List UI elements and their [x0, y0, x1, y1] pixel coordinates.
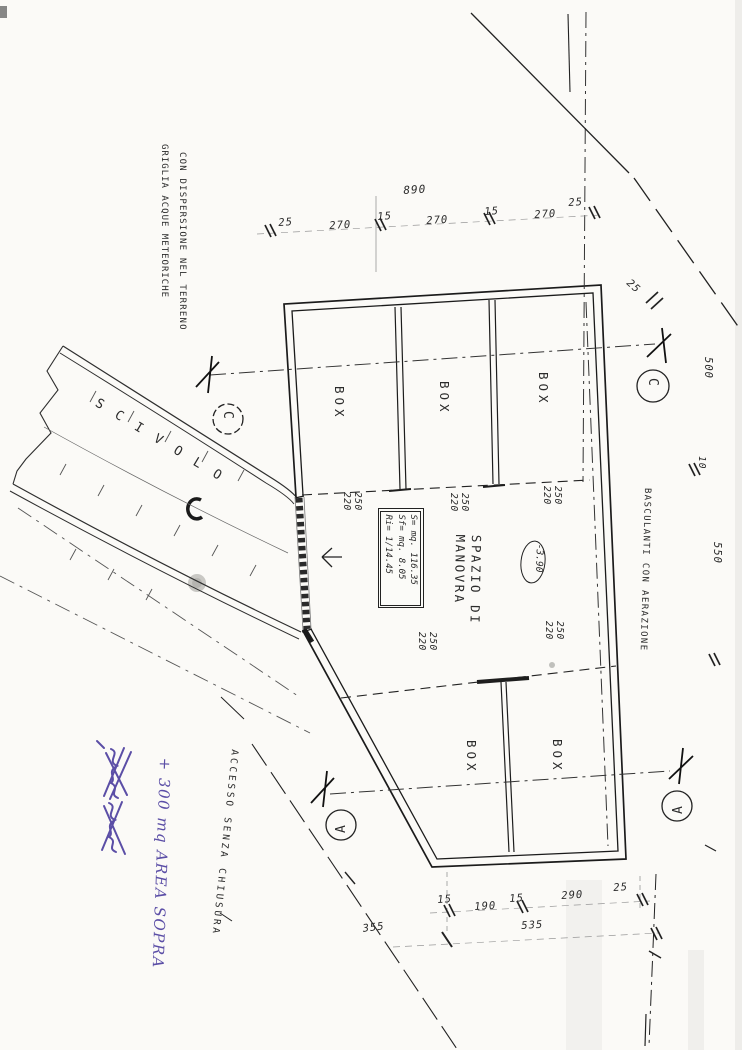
dim-top-total: 890 [403, 183, 427, 197]
dim-bottom-total: 535 [521, 919, 544, 932]
area-row-ri: Ri= 1/14.45 [382, 515, 395, 602]
dim-bot-1: 190 [474, 900, 497, 913]
terrain-jagged-edge [13, 346, 63, 484]
dim-bot-4: 25 [613, 881, 628, 894]
note-griglia-line2: CON DISPERSIONE NEL TERRENO [177, 152, 187, 331]
ramp-lower-edge [13, 484, 301, 632]
dim-right-500: 500 [702, 357, 714, 379]
stall-pair-1: 250 220 [341, 492, 363, 511]
dim-top-0: 25 [278, 216, 293, 229]
scanned-floor-plan-sheet: GRIGLIA ACQUE METEORICHE CON DISPERSIONE… [0, 0, 742, 1050]
scan-artifacts [0, 0, 742, 1050]
dim-top-4: 15 [484, 205, 499, 218]
stall-width: 250 [459, 493, 470, 512]
ink-scribbles [97, 741, 131, 854]
dimension-ticks [265, 206, 720, 947]
stall-width: 250 [554, 621, 565, 640]
section-label-c-left: C [220, 411, 235, 419]
stall-door: 220 [543, 621, 554, 640]
section-line-c [210, 344, 655, 375]
stall-pair-4: 250 220 [416, 632, 438, 651]
stall-pair-3: 250 220 [541, 486, 563, 505]
section-arrow-a-left [311, 771, 334, 807]
dim-right-10: 10 [696, 456, 707, 469]
section-arrow-c-right [647, 328, 671, 363]
dim-top-3: 270 [426, 214, 449, 227]
section-lines [210, 12, 670, 846]
stall-width: 250 [552, 486, 563, 505]
grate-strip [295, 497, 311, 630]
quota-value: -3.90 [533, 544, 545, 573]
wall-stub [304, 629, 312, 642]
stall-pair-5: 250 220 [543, 621, 565, 640]
label-box-3: BOX [536, 372, 551, 407]
plan-linework [0, 0, 742, 1050]
ramp-hatch-ticks [60, 391, 256, 600]
dim-bot-0: 15 [437, 893, 452, 906]
section-label-a-right: A [671, 806, 686, 814]
dim-bot-3: 290 [561, 889, 584, 902]
drain-arrow [322, 548, 342, 567]
label-box-5: BOX [550, 739, 565, 774]
boundary-355 [252, 744, 457, 1049]
area-table: S= mq. 116.35 Sf= mq. 8.05 Ri= 1/14.45 [378, 508, 424, 608]
area-row-s: S= mq. 116.35 [407, 515, 420, 602]
spazio-line1: SPAZIO DI [466, 535, 484, 631]
section-arrow-a-right [669, 748, 693, 784]
dim-bot-2: 15 [509, 892, 524, 905]
label-box-4: BOX [464, 740, 479, 775]
dim-top-6: 25 [568, 196, 583, 209]
stall-door: 220 [448, 493, 459, 512]
stall-door: 220 [541, 486, 552, 505]
stall-door: 220 [341, 492, 352, 511]
label-box-1: BOX [332, 386, 347, 421]
spazio-line2: MANOVRA [450, 534, 468, 630]
stall-pair-2: 250 220 [448, 493, 470, 512]
section-label-a-left: A [334, 825, 349, 833]
area-row-sf: Sf= mq. 8.05 [395, 515, 408, 602]
ramp-upper-edge [63, 346, 297, 498]
stall-width: 250 [427, 632, 438, 651]
pen-mark-crescent [188, 499, 202, 519]
dim-top-1: 270 [329, 219, 352, 232]
access-centerline [18, 508, 298, 696]
dim-top-2: 15 [377, 210, 392, 223]
stall-door: 220 [416, 632, 427, 651]
ramp-scivolo [0, 346, 310, 733]
note-griglia-line1: GRIGLIA ACQUE METEORICHE [159, 144, 169, 298]
stall-width: 250 [352, 492, 363, 511]
section-label-c-right: C [645, 378, 660, 386]
dim-right-550: 550 [711, 542, 723, 564]
label-box-2: BOX [437, 381, 452, 416]
label-spazio-di-manovra: SPAZIO DI MANOVRA [450, 534, 484, 631]
dim-top-5: 270 [534, 208, 557, 221]
